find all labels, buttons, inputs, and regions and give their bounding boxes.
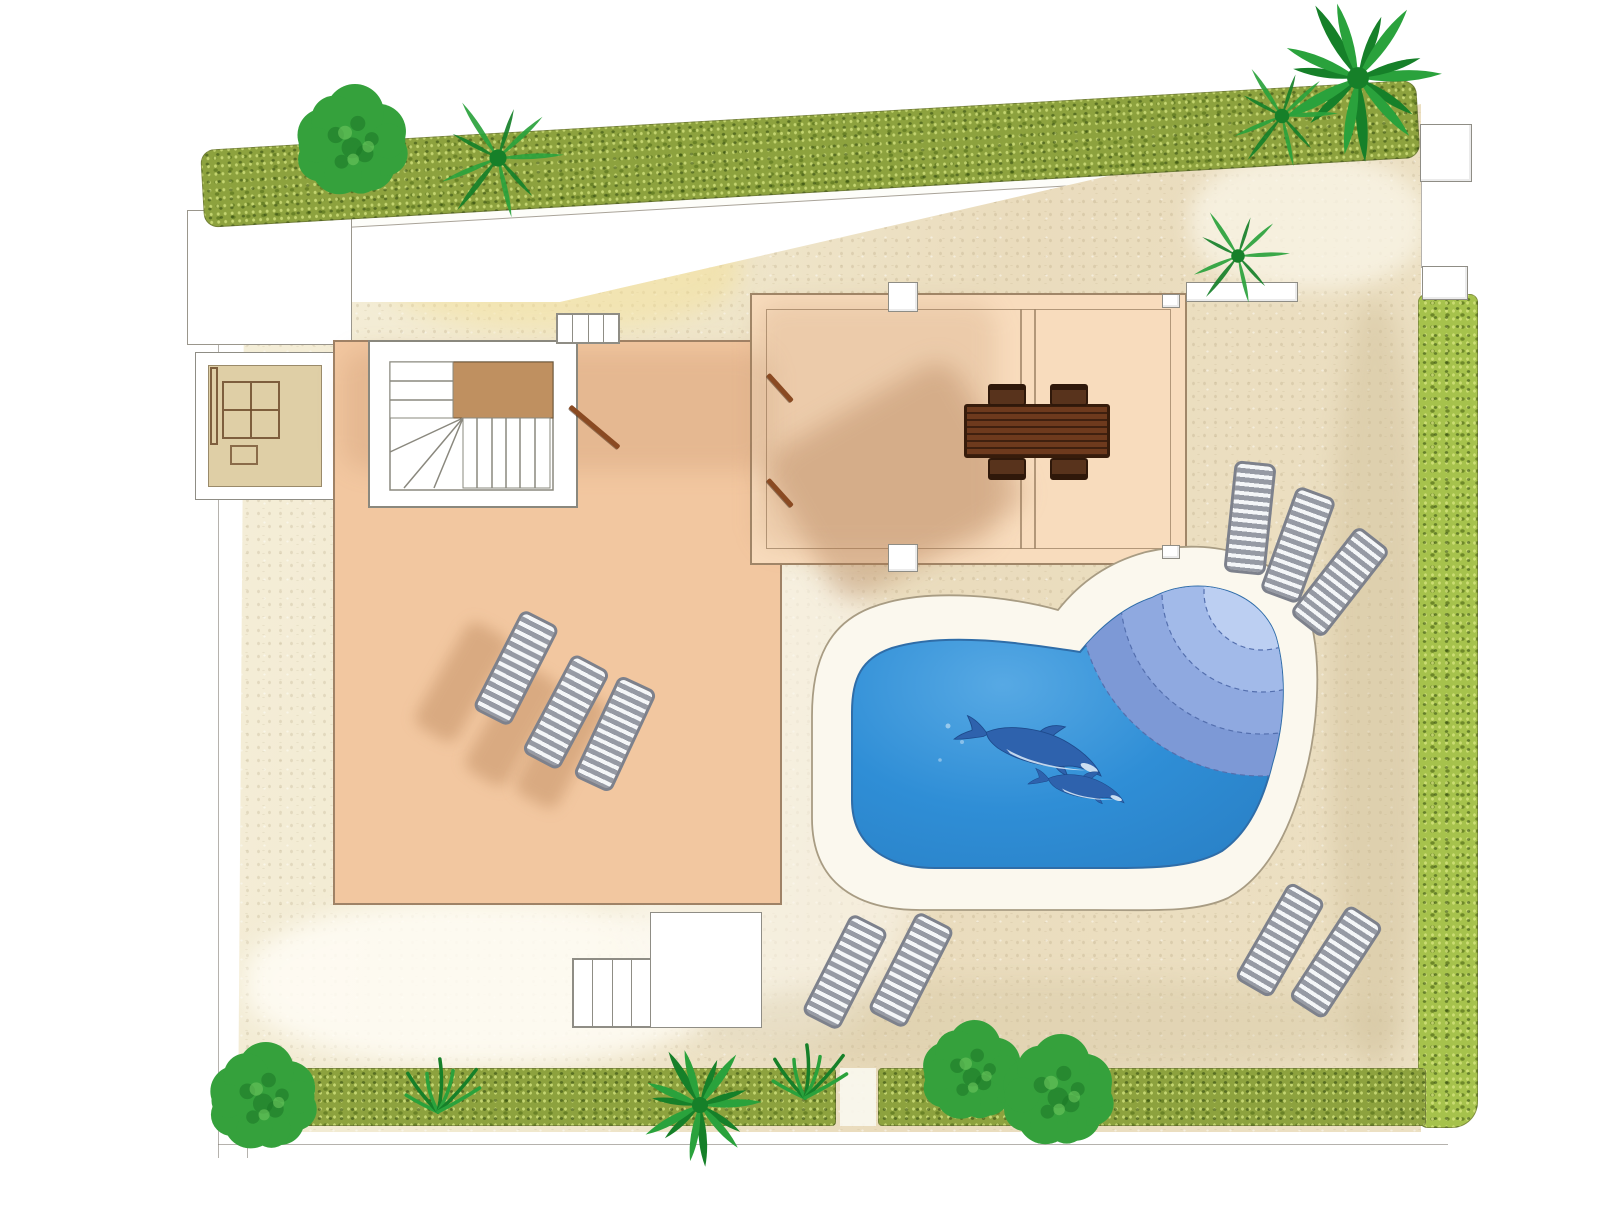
steps-upper-terrace: [556, 313, 620, 344]
gate-post-north: [1420, 124, 1472, 182]
steps-upper-terrace-tread: [604, 315, 618, 342]
pergola-post-south: [888, 544, 918, 572]
garden-landing-platform: [650, 912, 762, 1028]
steps-lower-garden-tread: [632, 960, 650, 1026]
pergola-corner-ne: [1162, 294, 1180, 308]
steps-lower-garden-tread: [613, 960, 632, 1026]
gate-post-east: [1422, 266, 1468, 300]
pergola-corner-se: [1162, 545, 1180, 559]
villa-garden-floor-plan: [0, 0, 1606, 1205]
steps-lower-garden-tread: [593, 960, 612, 1026]
dining-chair-4: [1050, 458, 1088, 480]
steps-upper-terrace-tread: [558, 315, 573, 342]
dining-table: [964, 404, 1110, 458]
dining-chair-3: [988, 458, 1026, 480]
dining-chair-1: [988, 384, 1026, 406]
bbq-outdoor-kitchen: [195, 352, 335, 500]
bbq-counter-rail: [210, 367, 218, 445]
palm-planter: [1186, 282, 1298, 302]
dining-chair-2: [1050, 384, 1088, 406]
entry-patio: [187, 210, 352, 345]
hedge-gap-path: [840, 1068, 876, 1126]
bbq-side-table: [230, 445, 258, 465]
steps-lower-garden-tread: [574, 960, 593, 1026]
steps-upper-terrace-tread: [573, 315, 588, 342]
main-terrace: [333, 340, 782, 905]
hedge-east: [1418, 294, 1478, 1128]
hedge-south-west: [236, 1068, 836, 1126]
steps-upper-terrace-tread: [589, 315, 604, 342]
bbq-grill-icon: [222, 381, 280, 439]
steps-lower-garden: [572, 958, 652, 1028]
hedge-south-east: [878, 1068, 1426, 1126]
pergola-post-north: [888, 282, 918, 312]
boundary-right-gate: [1421, 182, 1422, 268]
boundary-bottom: [218, 1144, 1448, 1145]
